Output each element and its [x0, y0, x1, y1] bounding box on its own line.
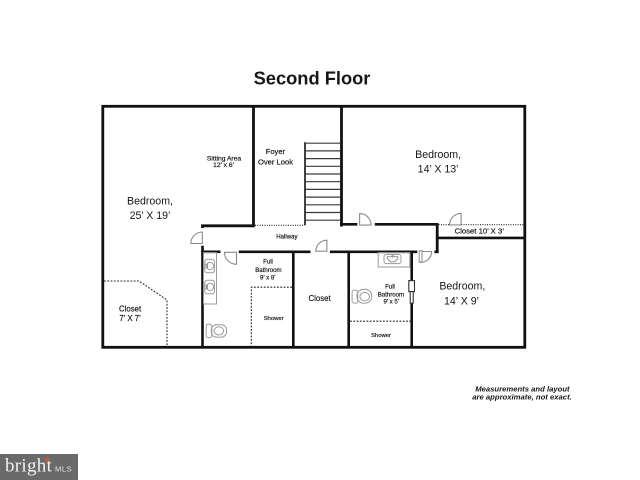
svg-text:25’ X 19’: 25’ X 19’	[130, 210, 171, 222]
svg-text:Bedroom,: Bedroom,	[415, 149, 461, 161]
svg-text:Full: Full	[263, 258, 273, 265]
svg-text:Over Look: Over Look	[258, 158, 293, 167]
svg-text:Bathroom: Bathroom	[378, 291, 404, 298]
svg-text:Closet: Closet	[119, 305, 142, 314]
svg-text:MLS: MLS	[55, 464, 72, 473]
svg-text:12’ x 6’: 12’ x 6’	[213, 162, 234, 169]
svg-text:9’ x 5’: 9’ x 5’	[383, 298, 399, 305]
svg-text:Full: Full	[385, 284, 395, 291]
svg-text:Bathroom: Bathroom	[255, 267, 281, 274]
svg-text:Closet: Closet	[309, 294, 332, 303]
svg-text:7’ X 7’: 7’ X 7’	[119, 314, 141, 323]
svg-text:Foyer: Foyer	[266, 147, 286, 156]
svg-text:9’ x 8’: 9’ x 8’	[260, 274, 276, 281]
svg-text:Hallway: Hallway	[276, 234, 298, 241]
svg-text:Bedroom,: Bedroom,	[439, 280, 485, 292]
svg-text:✱: ✱	[44, 456, 51, 465]
svg-text:14’ X 13’: 14’ X 13’	[418, 163, 459, 175]
svg-text:Shower: Shower	[371, 333, 391, 339]
svg-text:Shower: Shower	[264, 316, 284, 322]
svg-text:are approximate, not exact.: are approximate, not exact.	[472, 393, 572, 402]
svg-text:14’ X 9’: 14’ X 9’	[444, 295, 479, 307]
svg-text:Closet 10’ X 3’: Closet 10’ X 3’	[455, 227, 505, 236]
svg-text:Second Floor: Second Floor	[254, 68, 371, 89]
svg-text:Bedroom,: Bedroom,	[127, 195, 173, 207]
